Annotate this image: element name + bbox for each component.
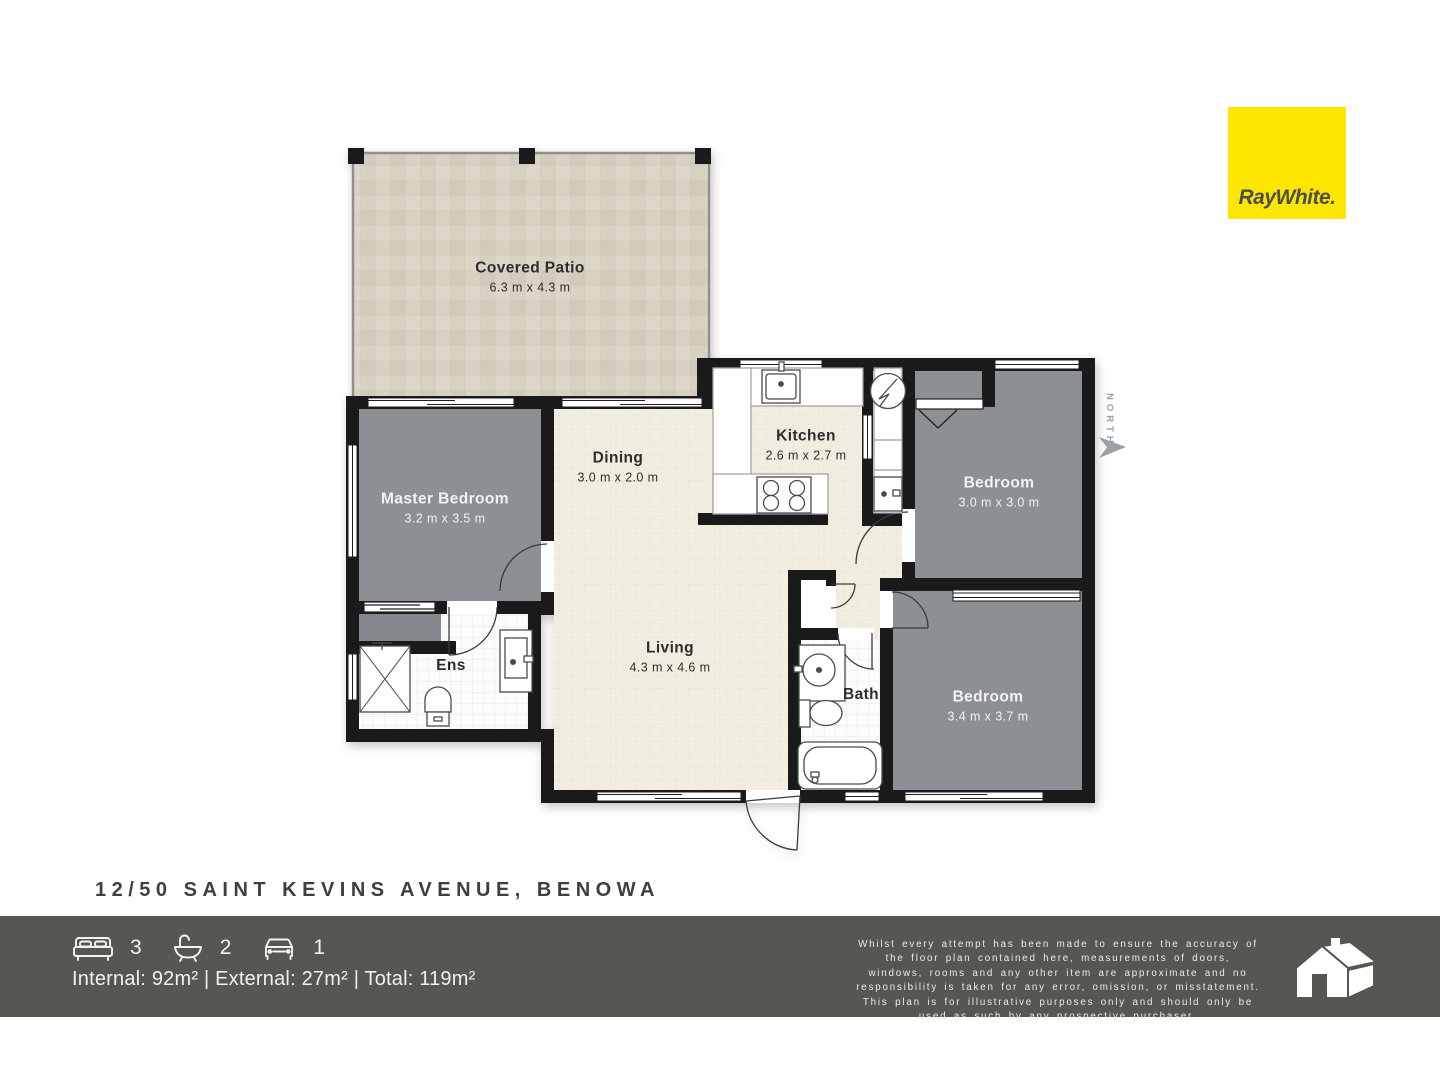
cars-count: 1 bbox=[313, 936, 325, 960]
bed-icon bbox=[72, 933, 114, 963]
beds-count: 3 bbox=[130, 936, 142, 960]
floorplan-page: Covered Patio6.3 m x 4.3 m Master Bedroo… bbox=[0, 0, 1440, 1080]
property-address: 12/50 SAINT KEVINS AVENUE, BENOWA bbox=[95, 879, 660, 902]
bath-icon bbox=[172, 933, 204, 963]
house-icon bbox=[1284, 934, 1384, 1000]
disclaimer-text: Whilst every attempt has been made to en… bbox=[856, 938, 1260, 1024]
floor-areas: Internal: 92m² | External: 27m² | Total:… bbox=[72, 968, 475, 991]
property-stats: 3 2 1 bbox=[72, 933, 355, 963]
footer-bar: 3 2 1 Internal: 92m² | External: 27m² | … bbox=[0, 916, 1440, 1017]
laundry-fixtures bbox=[871, 368, 906, 513]
raywhite-logo: RayWhite. bbox=[1228, 107, 1346, 219]
north-arrow-icon bbox=[1098, 436, 1128, 460]
raywhite-logo-text: RayWhite. bbox=[1228, 186, 1346, 210]
covered-patio-area bbox=[348, 148, 711, 396]
baths-count: 2 bbox=[220, 936, 232, 960]
car-icon bbox=[261, 933, 297, 963]
